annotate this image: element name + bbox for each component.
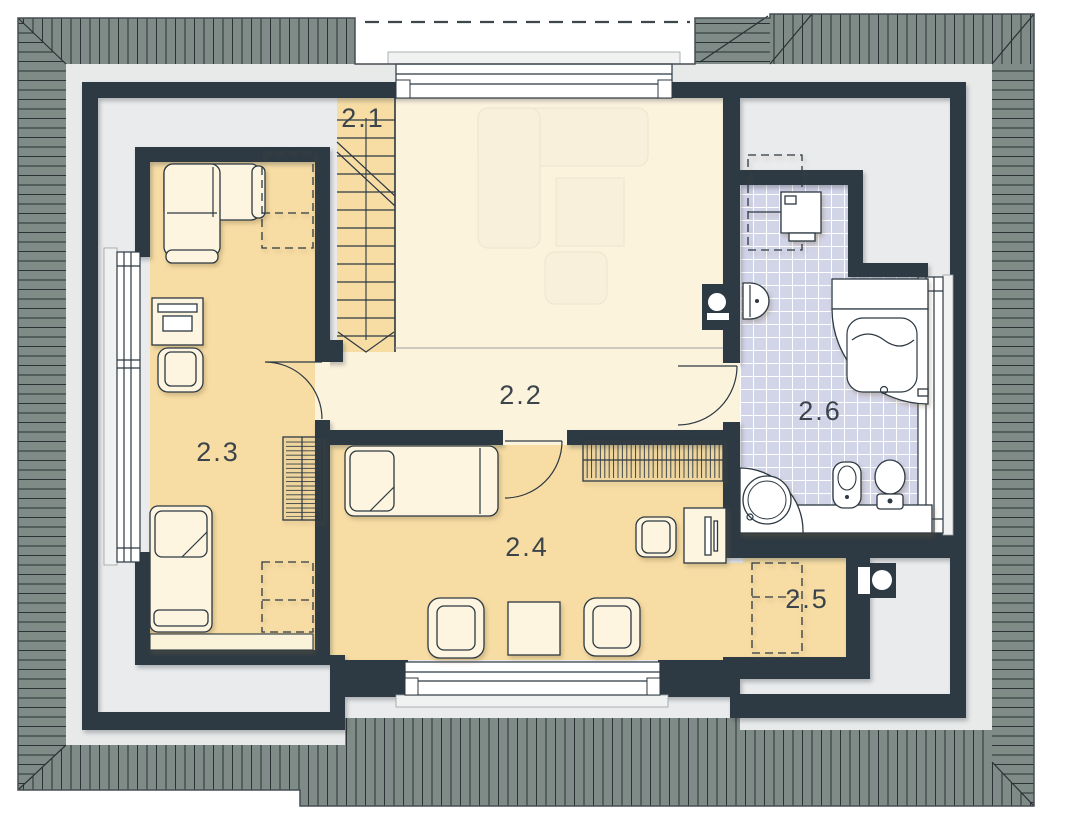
window-left-tall	[104, 248, 140, 565]
wall-bath-nook-horiz	[848, 263, 928, 277]
desk-with-monitor	[152, 298, 203, 345]
bidet	[833, 462, 861, 508]
room-label-2-6: 2.6	[798, 396, 842, 426]
room-label-2-2: 2.2	[499, 380, 543, 410]
wall-room23-left-upper	[135, 147, 150, 257]
floor-plan-canvas: 2.1 2.2 2.3 2.4 2.5 2.6	[0, 0, 1067, 825]
room-label-2-1: 2.1	[341, 103, 385, 133]
wall-stair-stub	[315, 340, 343, 362]
wall-perimeter-bottom-left	[82, 712, 345, 730]
roof-band-right	[992, 64, 1034, 806]
toilet	[875, 460, 905, 509]
wall-bath-bottom	[730, 533, 937, 558]
low-bench	[150, 634, 313, 650]
computer-chair	[636, 517, 676, 557]
door-gap-2-4	[503, 430, 567, 445]
wardrobe-rail-vertical	[283, 437, 322, 520]
single-bed-left	[150, 506, 212, 632]
wall-room25-right	[846, 542, 870, 672]
window-bottom	[396, 662, 668, 707]
wall-bath-nook-vert	[848, 170, 863, 270]
room-label-2-3: 2.3	[196, 437, 240, 467]
wall-connector-bottom-left	[330, 655, 345, 730]
wall-perimeter-left	[82, 82, 98, 730]
computer-desk	[684, 508, 726, 563]
armchair-right	[584, 598, 640, 656]
wall-window-stub-left	[345, 660, 408, 697]
single-bed-top	[345, 446, 498, 516]
room-label-2-5: 2.5	[785, 584, 829, 614]
wall-perimeter-bottom-right	[730, 694, 966, 718]
wall-room23-right-upper	[315, 147, 330, 362]
roof-band-top	[18, 18, 355, 64]
desk-chair	[158, 348, 203, 392]
door-gap-2-3	[315, 362, 330, 420]
window-top-large	[388, 52, 680, 98]
wall-corridor-bottom-left	[330, 430, 503, 445]
wall-bath-top	[740, 170, 850, 185]
chimney-living	[702, 284, 738, 330]
chimney-storage	[856, 563, 896, 598]
wall-room23-top	[135, 147, 330, 162]
roof-band-dormer	[770, 14, 1034, 64]
armchair-left	[428, 598, 484, 658]
ghost-sofa-vertical	[478, 108, 540, 248]
wall-room23-left-lower	[135, 552, 150, 665]
coffee-table	[508, 602, 560, 655]
ghost-armchair	[545, 252, 607, 304]
roof-band-left	[18, 18, 66, 790]
room-label-2-4: 2.4	[505, 532, 549, 562]
wall-room25-bottom	[723, 657, 870, 679]
ghost-table	[556, 178, 624, 246]
wardrobe-rail-horizontal	[583, 439, 723, 481]
floor-plan-drawing: 2.1 2.2 2.3 2.4 2.5 2.6	[0, 0, 1067, 825]
wall-room23-bottom	[135, 650, 330, 665]
